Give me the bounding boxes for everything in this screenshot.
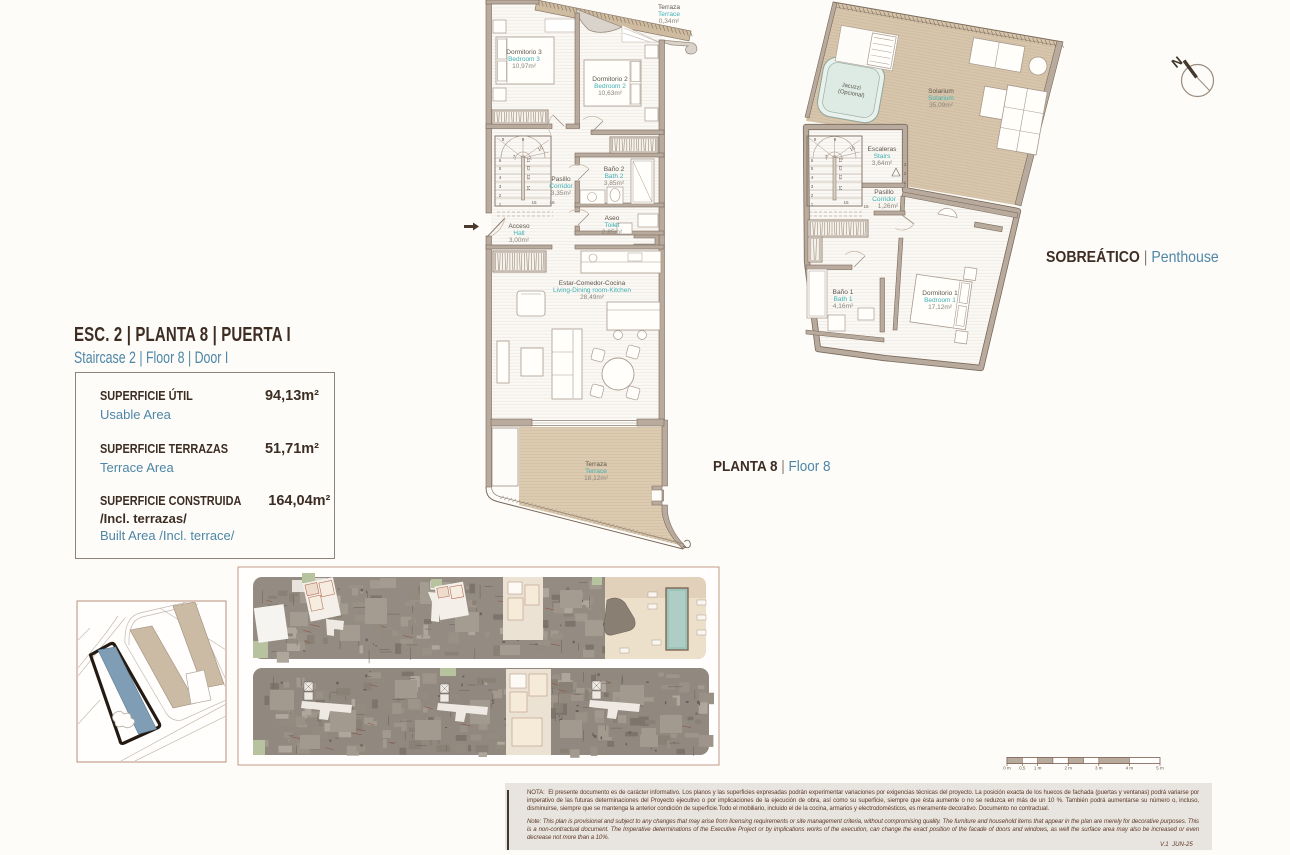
- svg-text:Bedroom 1: Bedroom 1: [924, 297, 956, 304]
- svg-text:4: 4: [811, 175, 814, 180]
- svg-text:6: 6: [499, 158, 502, 163]
- svg-text:3: 3: [811, 184, 814, 189]
- svg-text:Solarium: Solarium: [928, 88, 954, 95]
- svg-text:9: 9: [522, 137, 525, 142]
- svg-text:28,49m²: 28,49m²: [580, 294, 605, 301]
- svg-text:Terrace: Terrace: [658, 11, 680, 18]
- svg-text:17,12m²: 17,12m²: [928, 304, 953, 311]
- svg-text:11: 11: [526, 158, 531, 163]
- svg-text:5 m: 5 m: [1156, 766, 1164, 771]
- svg-text:0,5: 0,5: [1019, 766, 1026, 771]
- svg-text:8: 8: [814, 137, 817, 142]
- svg-text:13: 13: [838, 174, 843, 180]
- svg-text:2,85m²: 2,85m²: [602, 229, 623, 236]
- svg-text:15: 15: [531, 200, 537, 205]
- svg-text:Living-Dining room-Kitchen: Living-Dining room-Kitchen: [553, 287, 631, 294]
- svg-text:Terraza: Terraza: [585, 461, 607, 468]
- svg-text:Solarium: Solarium: [928, 95, 954, 102]
- svg-text:13: 13: [526, 174, 531, 180]
- svg-text:Pasillo: Pasillo: [874, 189, 894, 196]
- svg-text:Dormitorio 3: Dormitorio 3: [506, 49, 542, 56]
- svg-text:12: 12: [526, 165, 531, 171]
- svg-text:Bath 1: Bath 1: [833, 296, 852, 303]
- svg-text:Toilet: Toilet: [604, 222, 619, 229]
- svg-text:35,09m²: 35,09m²: [929, 102, 954, 109]
- svg-text:14: 14: [838, 185, 843, 191]
- svg-text:2: 2: [499, 193, 502, 198]
- svg-text:1,26m²: 1,26m²: [878, 203, 899, 210]
- svg-text:14: 14: [526, 185, 531, 191]
- svg-text:3,64m²: 3,64m²: [872, 160, 893, 167]
- svg-text:5: 5: [811, 166, 814, 171]
- svg-text:11: 11: [838, 158, 843, 163]
- svg-text:Pasillo: Pasillo: [551, 176, 571, 183]
- svg-text:Terrace: Terrace: [585, 468, 607, 475]
- svg-text:8: 8: [502, 137, 505, 142]
- svg-text:Dormitorio 1: Dormitorio 1: [922, 290, 958, 297]
- svg-text:Corridor: Corridor: [872, 196, 897, 203]
- svg-text:Corridor: Corridor: [549, 183, 573, 190]
- svg-text:Baño 1: Baño 1: [833, 289, 854, 296]
- svg-text:0 m: 0 m: [1003, 766, 1011, 771]
- svg-text:3,85m²: 3,85m²: [604, 180, 625, 187]
- svg-text:3,00m²: 3,00m²: [509, 237, 530, 244]
- svg-text:Aseo: Aseo: [605, 215, 620, 222]
- svg-text:5: 5: [499, 166, 502, 171]
- svg-text:1: 1: [499, 202, 502, 207]
- svg-text:7: 7: [513, 154, 516, 159]
- svg-text:2 m: 2 m: [1064, 766, 1072, 771]
- svg-text:Estar-Comedor-Cocina: Estar-Comedor-Cocina: [559, 280, 626, 287]
- svg-text:7: 7: [825, 154, 828, 159]
- svg-text:12: 12: [838, 165, 843, 171]
- svg-text:9: 9: [834, 137, 837, 142]
- svg-text:3,35m²: 3,35m²: [551, 190, 572, 197]
- svg-text:6: 6: [811, 158, 814, 163]
- svg-text:Baño 2: Baño 2: [604, 166, 625, 173]
- svg-text:Escaleras: Escaleras: [868, 146, 898, 153]
- svg-text:18,12m²: 18,12m²: [584, 475, 609, 482]
- svg-text:16: 16: [549, 200, 555, 205]
- svg-text:1: 1: [904, 180, 907, 185]
- svg-text:4: 4: [499, 175, 502, 180]
- svg-text:0,34m²: 0,34m²: [659, 18, 680, 25]
- svg-text:1: 1: [811, 202, 814, 207]
- svg-text:4 m: 4 m: [1126, 766, 1134, 771]
- svg-text:2: 2: [811, 193, 814, 198]
- svg-text:Terraza: Terraza: [658, 4, 680, 11]
- svg-text:15: 15: [843, 200, 849, 205]
- svg-text:Bedroom 3: Bedroom 3: [508, 56, 540, 63]
- svg-text:3 m: 3 m: [1095, 766, 1103, 771]
- svg-text:Hall: Hall: [513, 230, 525, 237]
- svg-text:Stairs: Stairs: [874, 153, 892, 160]
- svg-text:Bath 2: Bath 2: [605, 173, 624, 180]
- svg-text:10,97m²: 10,97m²: [512, 63, 537, 70]
- svg-text:4,16m²: 4,16m²: [833, 303, 854, 310]
- svg-text:3: 3: [904, 162, 907, 167]
- svg-text:Bedroom 2: Bedroom 2: [594, 83, 626, 90]
- svg-text:Acceso: Acceso: [508, 223, 530, 230]
- svg-text:16: 16: [863, 204, 869, 209]
- svg-text:Dormitorio 2: Dormitorio 2: [592, 76, 628, 83]
- svg-text:1 m: 1 m: [1034, 766, 1042, 771]
- svg-text:3: 3: [499, 184, 502, 189]
- svg-text:10,63m²: 10,63m²: [598, 90, 623, 97]
- svg-text:2: 2: [904, 171, 907, 176]
